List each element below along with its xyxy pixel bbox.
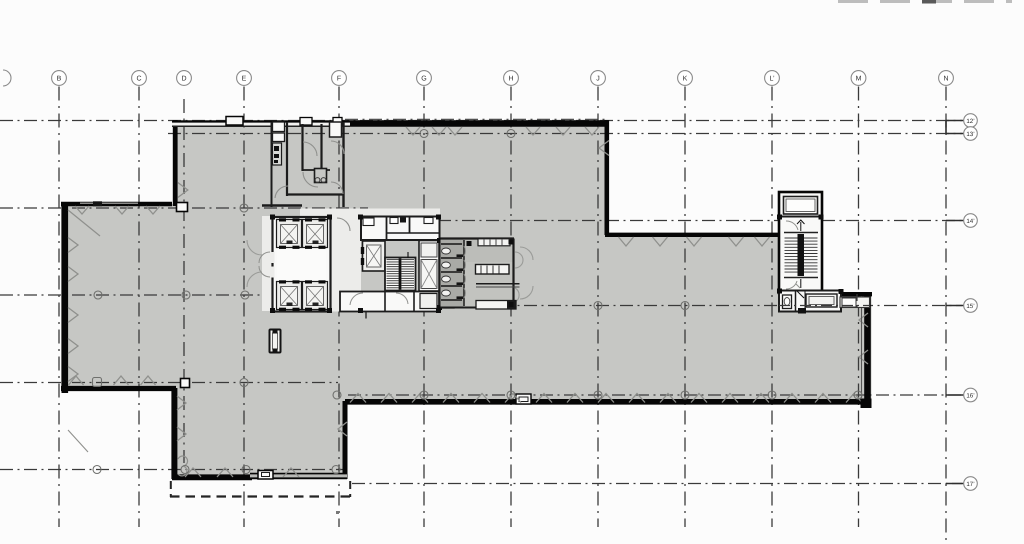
svg-text:12’: 12’: [966, 118, 974, 125]
svg-text:E: E: [242, 76, 247, 83]
svg-text:D: D: [181, 76, 186, 83]
svg-text:F: F: [337, 76, 341, 83]
svg-text:N: N: [943, 76, 948, 83]
svg-text:M: M: [856, 76, 862, 83]
svg-text:G: G: [421, 76, 426, 83]
svg-text:17’: 17’: [966, 481, 974, 488]
svg-text:K: K: [683, 76, 688, 83]
svg-text:15’: 15’: [966, 303, 974, 310]
svg-text:16’: 16’: [966, 393, 974, 400]
svg-text:L’: L’: [769, 76, 775, 83]
svg-text:13’: 13’: [966, 131, 974, 138]
svg-text:H: H: [508, 76, 513, 83]
svg-text:J: J: [596, 76, 600, 83]
svg-text:14’: 14’: [966, 218, 974, 225]
svg-text:C: C: [136, 76, 141, 83]
svg-text:B: B: [57, 76, 62, 83]
